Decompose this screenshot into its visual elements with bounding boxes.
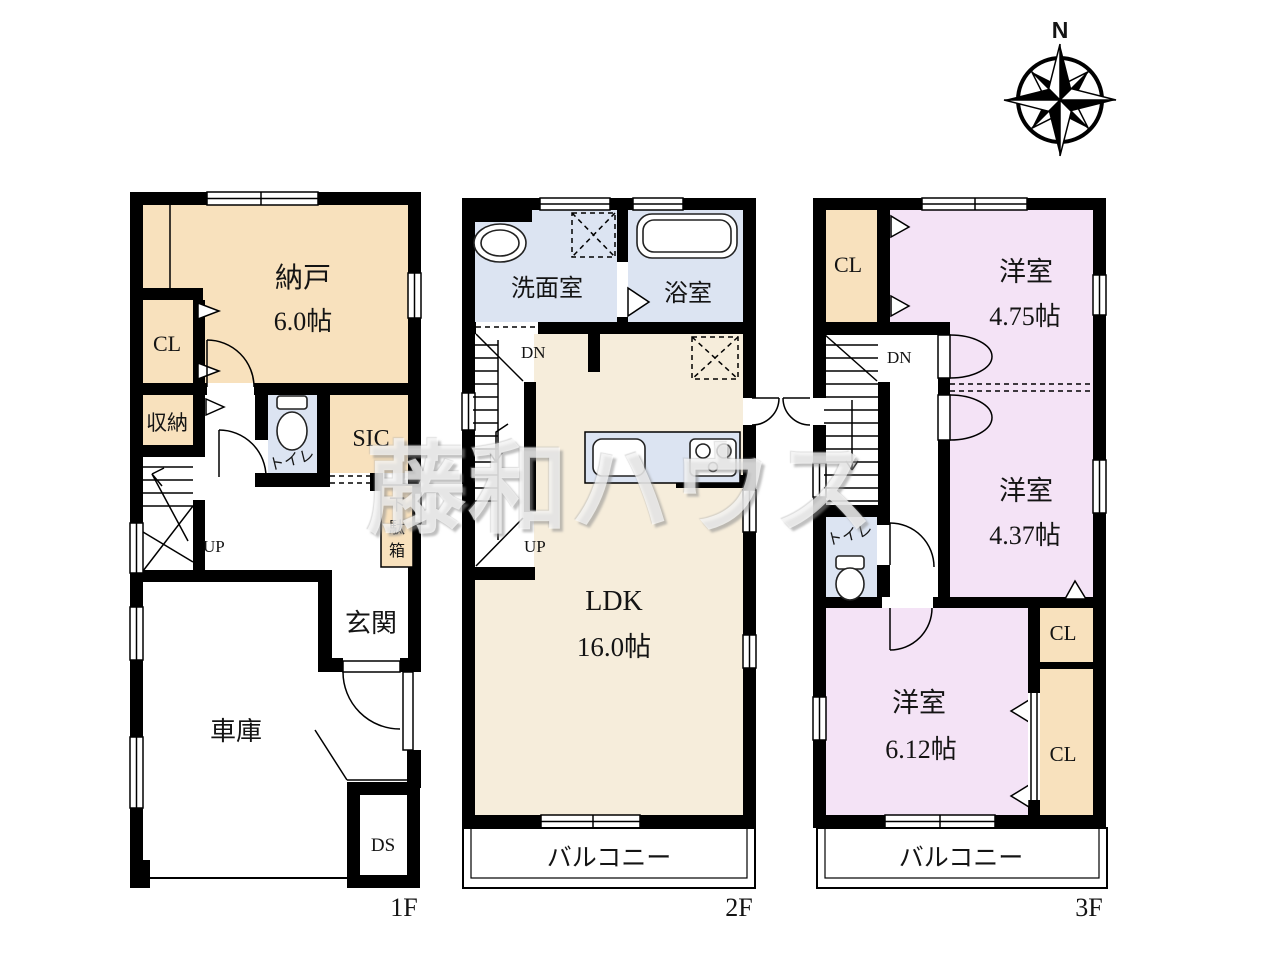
label-room-b: 洋室 <box>999 476 1053 506</box>
stairs-1f <box>143 467 193 571</box>
label-closet-a: CL <box>834 252 862 277</box>
door-arc-2f-east <box>752 398 779 425</box>
label-storage-room: 納戸 <box>275 262 331 294</box>
compass-rose: N <box>1004 17 1116 156</box>
label-shuno: 収納 <box>146 411 188 435</box>
floor-label-1f: 1F <box>390 893 417 922</box>
fold-door-arrow <box>206 399 224 415</box>
toilet-icon-3f <box>836 556 864 600</box>
porch-step-line <box>315 730 347 780</box>
sink-icon <box>474 224 526 262</box>
label-room-a: 洋室 <box>999 257 1053 287</box>
label-bathroom: 浴室 <box>664 280 712 307</box>
label-dn-2f: DN <box>521 343 546 362</box>
label-room-a-size: 4.75帖 <box>989 302 1061 331</box>
label-entrance: 玄関 <box>345 609 397 638</box>
label-getabako-1: 下 <box>389 497 405 514</box>
label-sic: SIC <box>352 426 389 452</box>
label-getabako-3: 箱 <box>389 542 405 560</box>
floor-plan-canvas: 納戸 6.0帖 CL 収納 トイレ SIC 下 駄 箱 UP 玄関 車庫 DS … <box>0 0 1280 960</box>
label-washroom: 洗面室 <box>511 275 583 302</box>
label-closet-c: CL <box>1050 742 1077 766</box>
bathtub-icon <box>637 214 737 258</box>
stairs-3f <box>824 334 878 501</box>
floor-label-3f: 3F <box>1075 893 1102 922</box>
label-room-c: 洋室 <box>892 688 946 718</box>
kitchen-counter <box>585 432 740 483</box>
label-storage-size: 6.0帖 <box>274 307 333 336</box>
label-closet-1f: CL <box>153 331 181 356</box>
label-getabako-2: 駄 <box>389 519 405 537</box>
label-garage: 車庫 <box>210 717 262 746</box>
floor-2f: 洗面室 浴室 DN UP LDK 16.0帖 バルコニー 2F <box>462 198 779 922</box>
label-balcony-3f: バルコニー <box>899 845 1024 872</box>
label-balcony-2f: バルコニー <box>547 845 672 872</box>
floor-plan-page: 納戸 6.0帖 CL 収納 トイレ SIC 下 駄 箱 UP 玄関 車庫 DS … <box>0 0 1280 960</box>
label-closet-b: CL <box>1050 621 1077 645</box>
label-duct: DS <box>371 835 395 856</box>
compass-north-label: N <box>1052 17 1069 43</box>
stairs-2f <box>473 334 523 566</box>
label-ldk: LDK <box>585 586 643 617</box>
label-ldk-size: 16.0帖 <box>577 632 651 662</box>
label-dn-3f: DN <box>887 348 912 367</box>
label-room-c-size: 6.12帖 <box>885 735 957 764</box>
floor-1f: 納戸 6.0帖 CL 収納 トイレ SIC 下 駄 箱 UP 玄関 車庫 DS … <box>130 192 421 922</box>
closet-door-track <box>1028 693 1040 800</box>
toilet-icon-1f <box>277 396 307 450</box>
label-up-1f: UP <box>203 537 225 556</box>
label-up-2f: UP <box>524 537 546 556</box>
floor-3f: CL 洋室 4.75帖 DN 洋室 4.37帖 トイレ 洋室 6.12帖 CL … <box>783 198 1107 922</box>
label-room-b-size: 4.37帖 <box>989 521 1061 550</box>
floor-label-2f: 2F <box>725 893 752 922</box>
